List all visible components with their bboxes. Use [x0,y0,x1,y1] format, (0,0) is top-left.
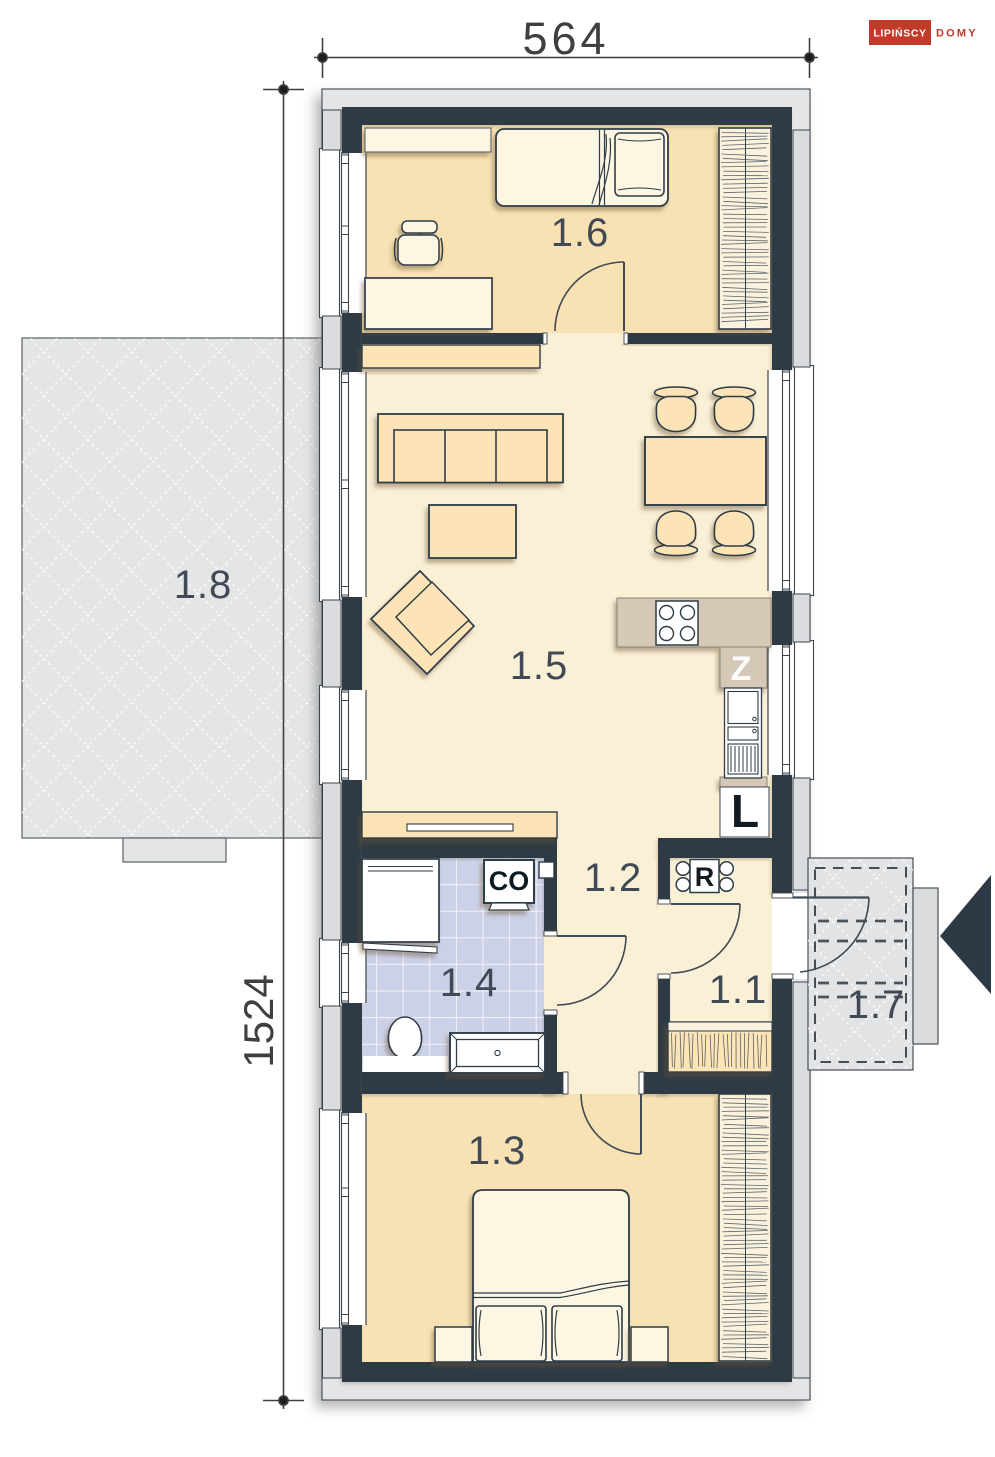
svg-text:1.3: 1.3 [468,1129,527,1173]
svg-text:1.1: 1.1 [709,968,768,1012]
svg-text:DOMY: DOMY [936,28,978,40]
svg-text:R: R [695,862,715,892]
svg-text:CO: CO [489,866,530,896]
svg-text:1.7: 1.7 [847,983,906,1027]
svg-text:564: 564 [522,13,609,64]
svg-text:L: L [731,785,759,837]
svg-text:1.5: 1.5 [510,644,569,688]
svg-text:1524: 1524 [235,974,282,1067]
svg-text:1.4: 1.4 [440,961,499,1005]
svg-text:1.8: 1.8 [174,563,233,607]
svg-text:1.2: 1.2 [584,856,643,900]
svg-text:Z: Z [731,650,752,688]
svg-text:1.6: 1.6 [551,211,610,255]
svg-text:LIPIŃSCY: LIPIŃSCY [873,27,926,40]
